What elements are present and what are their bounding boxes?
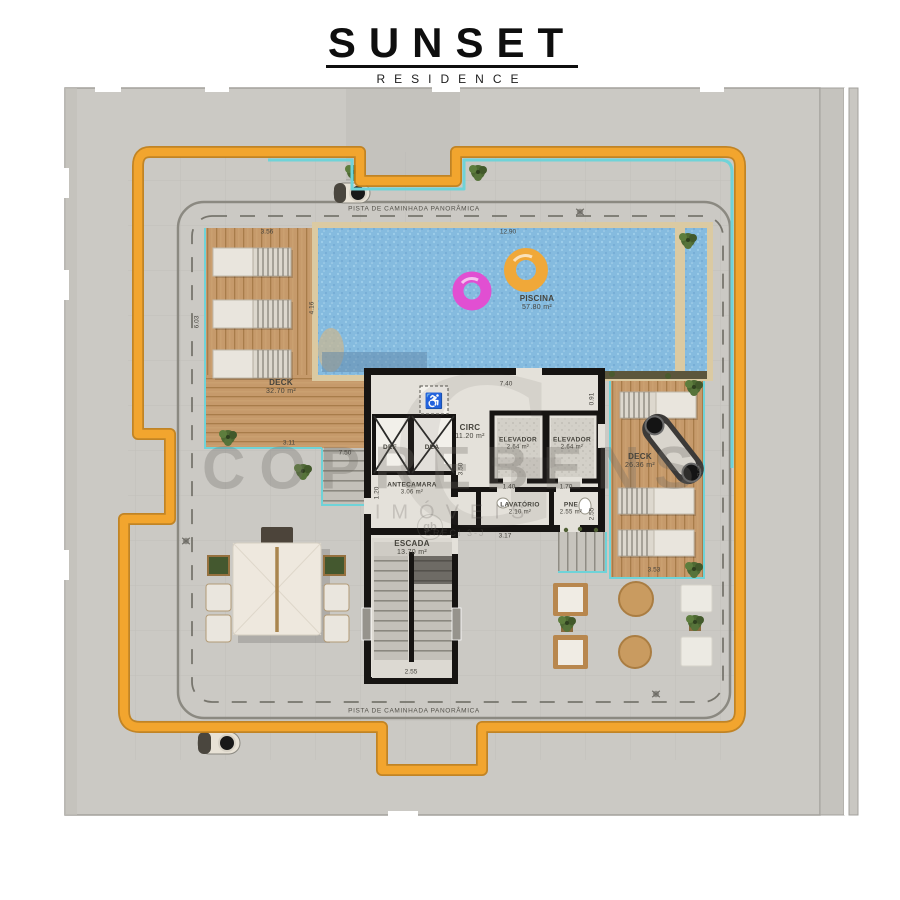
deck-left-furniture <box>213 248 293 380</box>
pool <box>312 222 713 381</box>
elevator-2 <box>547 413 599 484</box>
drain-sprite <box>182 537 190 544</box>
floorplan-graphic <box>0 0 900 900</box>
stairwell <box>362 538 461 678</box>
planter <box>208 556 229 575</box>
floorplan-canvas: SUNSET RESIDENCE <box>0 0 900 900</box>
grill-bottom <box>198 732 240 754</box>
shaft-dea <box>412 416 454 473</box>
accessible-zone <box>420 386 448 414</box>
drain-sprite <box>576 208 584 215</box>
toilet <box>579 498 591 514</box>
sink <box>497 498 509 508</box>
planter <box>324 556 345 575</box>
shaft-def <box>374 416 410 473</box>
core-steps <box>558 527 606 572</box>
drain-sprite <box>652 690 660 697</box>
elevator-1 <box>492 413 545 484</box>
